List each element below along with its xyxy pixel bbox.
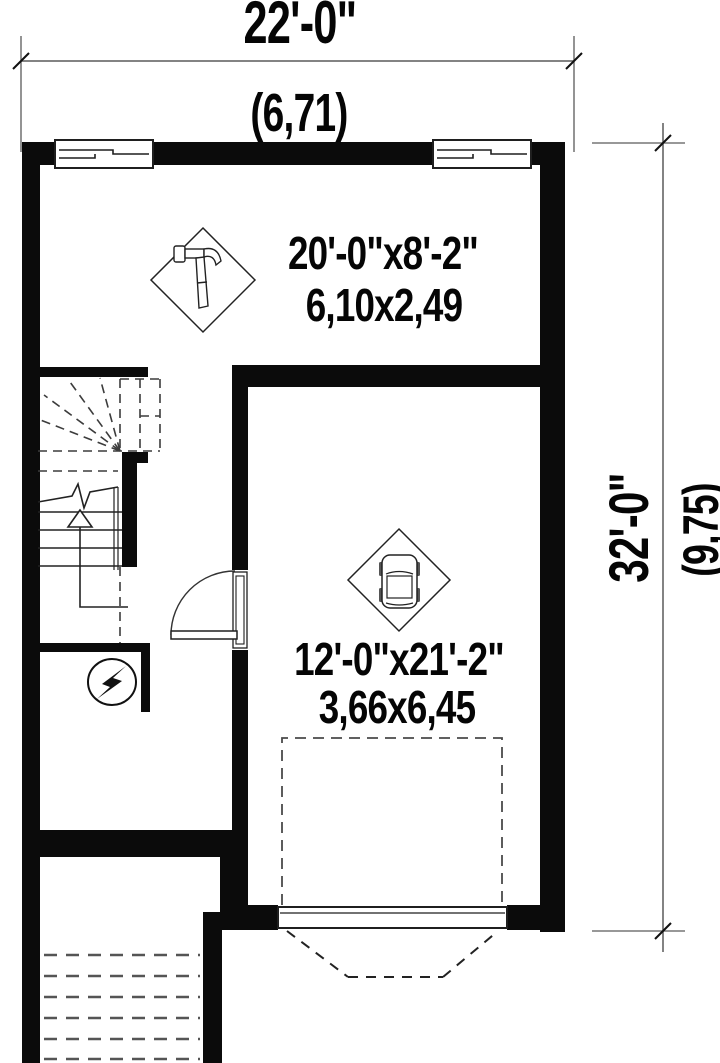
- exterior-steps: [44, 955, 200, 1059]
- workshop-size-metric: 6,10x2,49: [306, 282, 463, 328]
- garage-size-imperial: 12'-0"x21'-2": [294, 636, 504, 682]
- floor-plan-canvas: 22'-0" (6,71) 32'-0" (9,75) 20'-0"x8'-2"…: [0, 0, 720, 1063]
- window-right: [433, 140, 531, 168]
- dimension-right-metric: (9,75): [676, 483, 720, 576]
- garage-door-path: [282, 738, 502, 905]
- wall-garage-left-upper: [232, 365, 248, 572]
- car-icon: [379, 555, 420, 608]
- dimension-top-imperial: 22'-0": [244, 0, 357, 53]
- wall-terrace-right: [203, 912, 222, 1063]
- dimension-top-metric: (6,71): [250, 86, 347, 140]
- electrical-panel-icon: [88, 659, 136, 705]
- door-arc: [171, 571, 235, 635]
- wall-right: [540, 142, 565, 932]
- stair-handrail: [114, 487, 118, 570]
- wall-garage-jamb-left: [220, 905, 278, 930]
- wall-stair-top: [38, 367, 148, 377]
- wall-panel-v: [141, 643, 150, 712]
- wall-garage-left-lower: [232, 648, 248, 830]
- stair-break-line: [38, 484, 118, 508]
- driveway-outline: [287, 931, 498, 977]
- window-left: [55, 140, 153, 168]
- staircase: [38, 378, 160, 643]
- wall-garage-jamb-right: [507, 905, 540, 930]
- stairs-up-arrow: [68, 510, 128, 607]
- door-swing: [171, 570, 248, 650]
- garage-door: [278, 907, 507, 928]
- workshop-symbol: [151, 228, 255, 332]
- wall-garage-top: [233, 365, 540, 387]
- garage-symbol: [348, 529, 450, 631]
- garage-size-metric: 3,66x6,45: [319, 684, 476, 730]
- wall-left: [22, 142, 40, 1063]
- door-leaf: [171, 631, 237, 639]
- wall-bottom-left: [22, 830, 248, 857]
- workshop-size-imperial: 20'-0"x8'-2": [288, 230, 478, 276]
- wall-panel-h: [38, 643, 150, 652]
- dimension-right-imperial: 32'-0": [601, 473, 657, 582]
- wall-winder-stub-v: [122, 452, 137, 567]
